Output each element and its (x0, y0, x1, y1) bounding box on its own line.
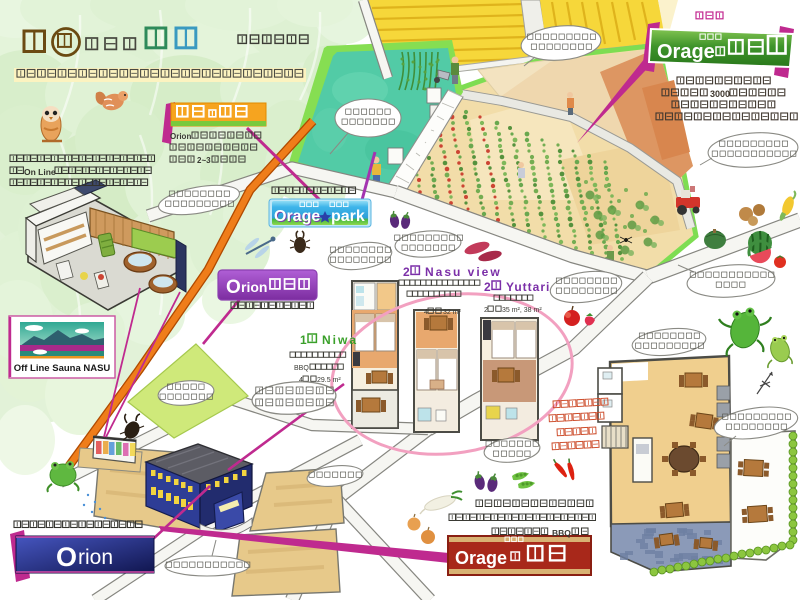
svg-text:2: 2 (484, 280, 491, 294)
svg-text:Nasu view: Nasu view (425, 265, 502, 279)
svg-text:Orage: Orage (274, 208, 320, 225)
svg-text:Orage: Orage (657, 41, 715, 63)
svg-text:BBQ: BBQ (552, 528, 571, 538)
svg-text:rion: rion (241, 279, 267, 295)
svg-text:Orage: Orage (455, 548, 507, 568)
svg-text:Yuttari: Yuttari (506, 280, 550, 294)
svg-text:2: 2 (484, 307, 488, 314)
svg-text:35 m², 38 m²: 35 m², 38 m² (502, 307, 542, 314)
svg-text:rion: rion (78, 546, 113, 569)
svg-text:Orion: Orion (170, 132, 191, 141)
svg-text:On Line: On Line (24, 167, 56, 177)
svg-text:2: 2 (403, 265, 410, 279)
svg-text:29.5 m²: 29.5 m² (317, 377, 341, 384)
svg-text:1: 1 (300, 333, 307, 347)
svg-text:BBQ: BBQ (294, 365, 309, 372)
svg-text:Niwa: Niwa (322, 333, 358, 347)
svg-text:3000: 3000 (710, 89, 730, 99)
svg-text:O: O (56, 542, 77, 572)
svg-text:4: 4 (424, 309, 428, 316)
svg-text:O: O (226, 277, 241, 298)
svg-text:2~3: 2~3 (197, 156, 211, 165)
svg-text:32 m²: 32 m² (443, 309, 462, 316)
svg-text:park: park (331, 208, 365, 225)
svg-text:Off Line Sauna NASU: Off Line Sauna NASU (14, 363, 111, 374)
